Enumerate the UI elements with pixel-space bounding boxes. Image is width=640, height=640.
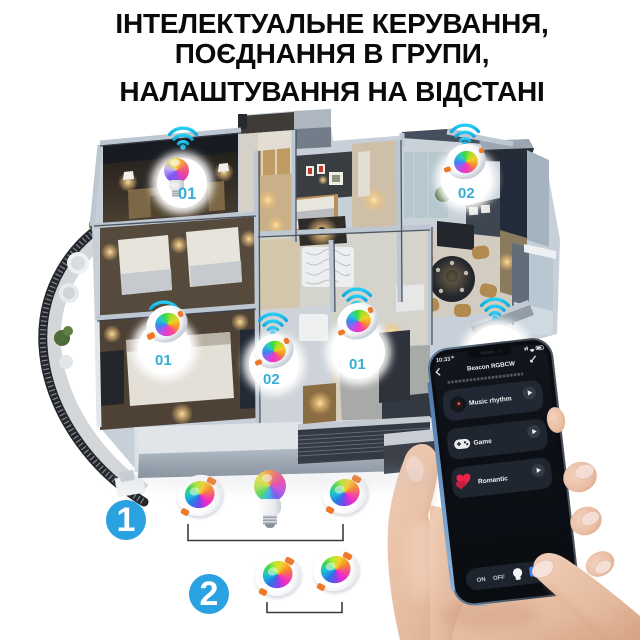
svg-text:ON: ON: [476, 577, 486, 584]
